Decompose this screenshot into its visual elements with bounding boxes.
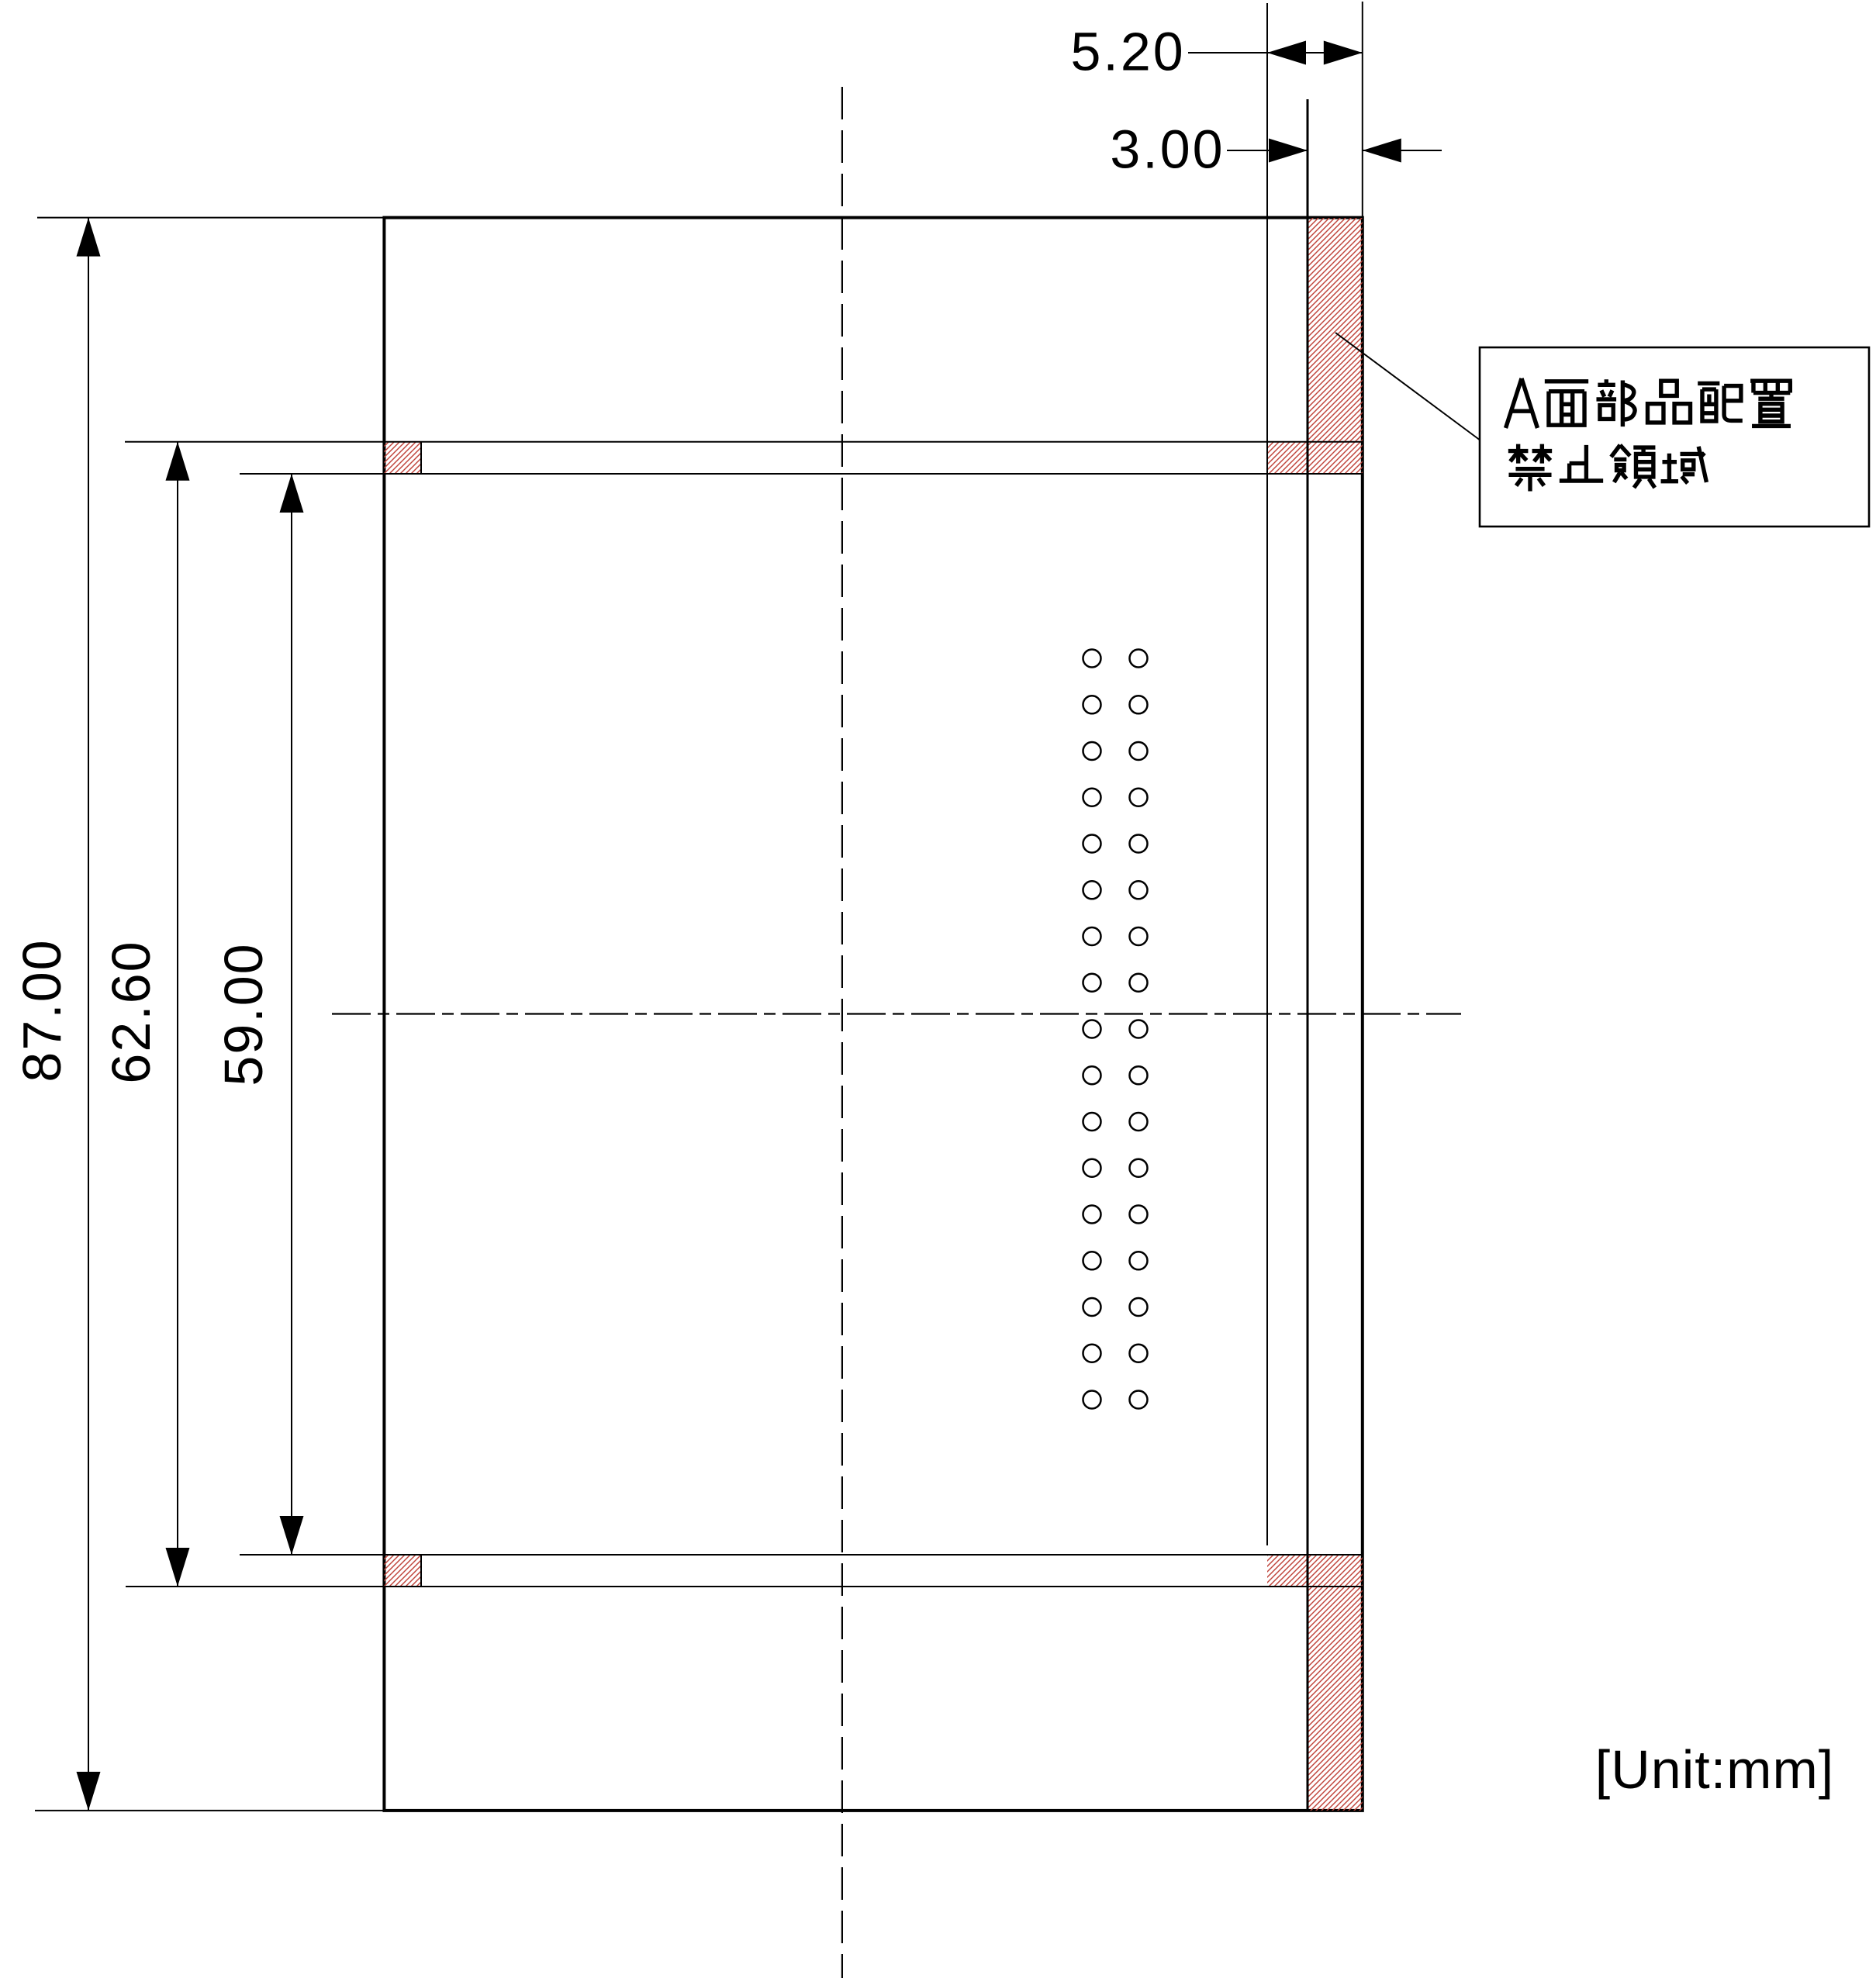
svg-text:3.00: 3.00	[1110, 119, 1225, 180]
svg-text:87.00: 87.00	[12, 938, 72, 1082]
svg-text:5.20: 5.20	[1070, 22, 1185, 82]
svg-text:[Unit:mm]: [Unit:mm]	[1595, 1739, 1834, 1800]
svg-text:59.00: 59.00	[213, 942, 274, 1086]
svg-text:62.60: 62.60	[101, 940, 161, 1083]
